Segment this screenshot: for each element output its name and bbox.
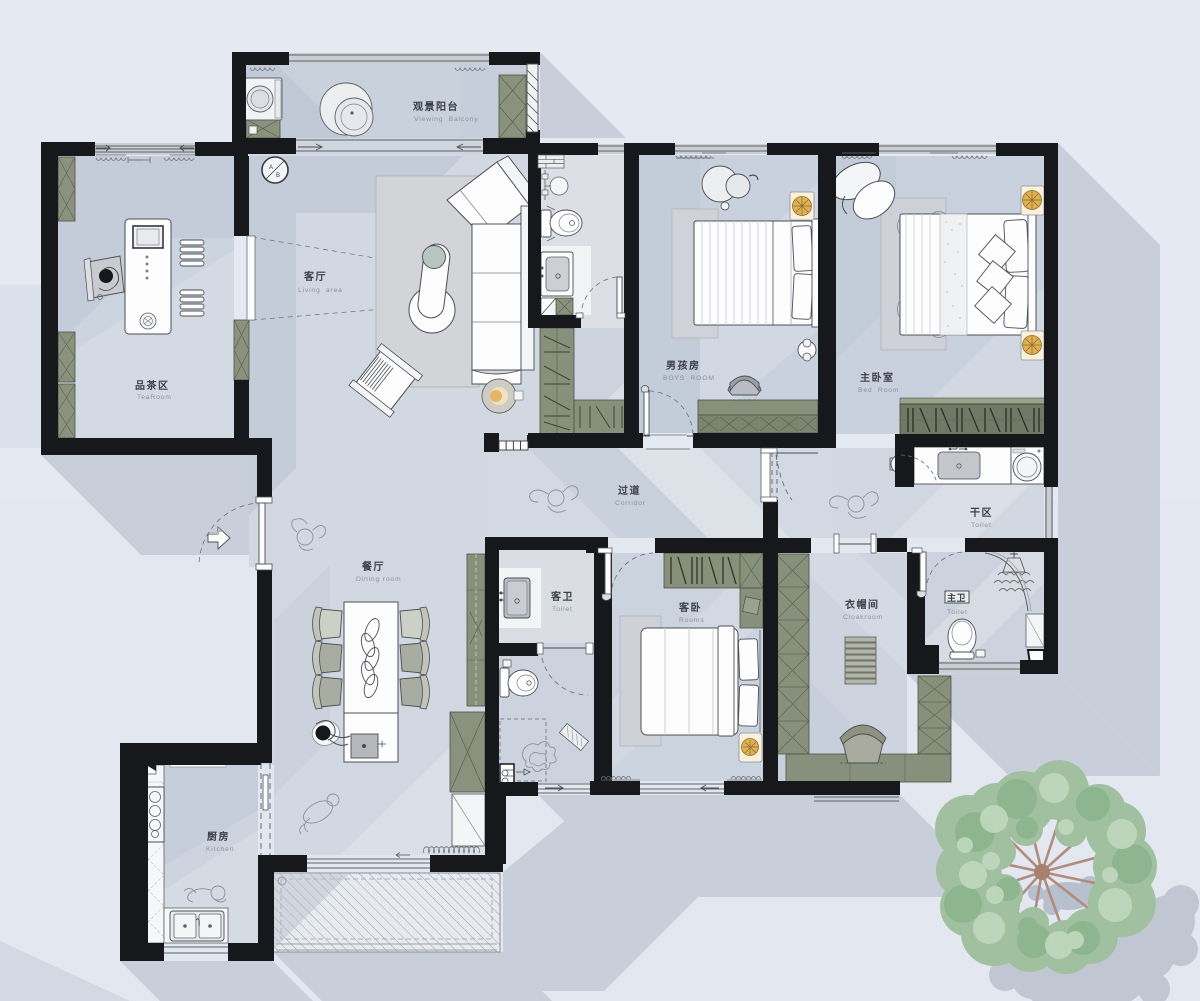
svg-text:Bed Room: Bed Room xyxy=(858,387,899,394)
svg-text:厨房: 厨房 xyxy=(207,830,230,843)
svg-text:Viewing Balcony: Viewing Balcony xyxy=(414,116,478,123)
svg-text:客卫: 客卫 xyxy=(550,590,574,603)
svg-text:主卫: 主卫 xyxy=(947,592,966,603)
svg-text:餐厅: 餐厅 xyxy=(361,560,385,573)
svg-text:Rooms: Rooms xyxy=(679,617,705,624)
svg-text:Cloakroom: Cloakroom xyxy=(843,614,883,621)
svg-text:Toilet: Toilet xyxy=(971,522,992,529)
svg-text:B: B xyxy=(276,173,280,179)
svg-text:TeaRoom: TeaRoom xyxy=(137,394,172,401)
svg-text:客厅: 客厅 xyxy=(303,270,327,283)
svg-text:Kitchen: Kitchen xyxy=(206,846,234,853)
svg-text:干区: 干区 xyxy=(970,507,993,519)
svg-text:衣帽间: 衣帽间 xyxy=(845,598,880,611)
svg-text:品茶区: 品茶区 xyxy=(135,379,170,392)
svg-text:过道: 过道 xyxy=(618,484,641,497)
svg-text:Living area: Living area xyxy=(298,287,343,294)
svg-text:男孩房: 男孩房 xyxy=(666,359,701,372)
svg-text:Dining room: Dining room xyxy=(356,576,401,583)
svg-text:观景阳台: 观景阳台 xyxy=(413,100,459,113)
svg-text:Toilet: Toilet xyxy=(552,606,573,613)
svg-text:客卧: 客卧 xyxy=(678,601,702,614)
svg-text:BOYS ROOM: BOYS ROOM xyxy=(663,375,715,382)
svg-text:Corridor: Corridor xyxy=(615,500,646,507)
svg-text:Toilet: Toilet xyxy=(947,609,968,616)
svg-text:主卧室: 主卧室 xyxy=(860,371,895,384)
svg-text:A: A xyxy=(269,165,273,171)
